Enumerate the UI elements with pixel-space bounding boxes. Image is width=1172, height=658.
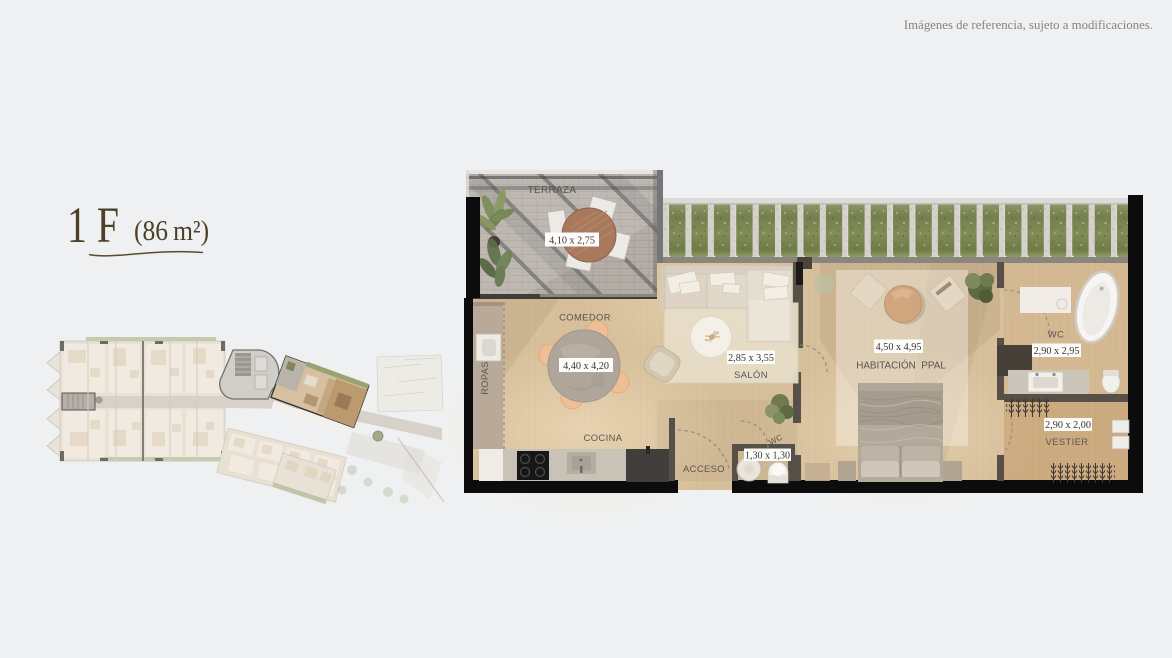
svg-text:(86 m²): (86 m²) bbox=[134, 215, 209, 247]
svg-text:VESTIER: VESTIER bbox=[1046, 436, 1089, 447]
svg-text:Imágenes de referencia, sujeto: Imágenes de referencia, sujeto a modific… bbox=[904, 18, 1153, 32]
svg-text:4,40 x 4,20: 4,40 x 4,20 bbox=[563, 361, 609, 372]
svg-text:ACCESO: ACCESO bbox=[683, 463, 725, 474]
svg-text:1 F: 1 F bbox=[67, 196, 119, 253]
svg-text:4,10 x 2,75: 4,10 x 2,75 bbox=[549, 236, 595, 247]
svg-text:HABITACIÓN PPAL: HABITACIÓN PPAL bbox=[856, 361, 946, 372]
svg-text:SALÓN: SALÓN bbox=[734, 369, 768, 380]
svg-text:ROPAS: ROPAS bbox=[480, 361, 490, 394]
svg-text:COMEDOR: COMEDOR bbox=[559, 312, 611, 323]
svg-text:TERRAZA: TERRAZA bbox=[528, 185, 577, 196]
svg-text:2,85 x 3,55: 2,85 x 3,55 bbox=[728, 353, 774, 364]
svg-text:4,50 x 4,95: 4,50 x 4,95 bbox=[876, 342, 922, 353]
svg-text:2,90 x 2,00: 2,90 x 2,00 bbox=[1045, 420, 1091, 431]
svg-text:1,30 x 1,30: 1,30 x 1,30 bbox=[745, 451, 790, 462]
svg-text:COCINA: COCINA bbox=[584, 432, 623, 443]
svg-text:WC: WC bbox=[1048, 329, 1064, 340]
svg-text:2,90 x 2,95: 2,90 x 2,95 bbox=[1034, 346, 1080, 357]
